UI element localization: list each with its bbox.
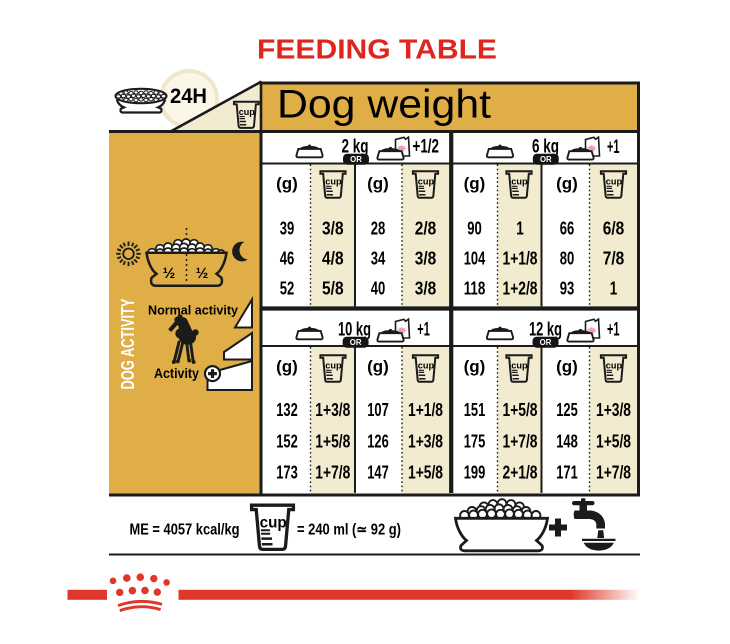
svg-text:52: 52 — [280, 278, 295, 299]
svg-text:½: ½ — [163, 265, 176, 282]
svg-text:24H: 24H — [170, 85, 207, 108]
svg-text:1+5/8: 1+5/8 — [408, 462, 443, 483]
svg-text:5/8: 5/8 — [322, 278, 344, 299]
svg-text:40: 40 — [371, 278, 386, 299]
svg-text:(g): (g) — [464, 357, 486, 376]
svg-text:FEEDING TABLE: FEEDING TABLE — [257, 34, 497, 65]
svg-text:1+5/8: 1+5/8 — [315, 431, 350, 452]
svg-text:93: 93 — [560, 278, 575, 299]
svg-text:1+5/8: 1+5/8 — [596, 431, 631, 452]
svg-text:126: 126 — [367, 431, 389, 452]
svg-text:151: 151 — [464, 399, 486, 420]
svg-text:+1: +1 — [607, 320, 620, 341]
svg-text:148: 148 — [556, 431, 578, 452]
svg-text:107: 107 — [367, 399, 389, 420]
svg-text:1+7/8: 1+7/8 — [503, 431, 538, 452]
svg-text:+1: +1 — [607, 137, 620, 158]
svg-text:Normal activity: Normal activity — [148, 304, 238, 318]
svg-text:1+3/8: 1+3/8 — [408, 431, 443, 452]
svg-text:(g): (g) — [276, 174, 298, 193]
svg-text:(g): (g) — [464, 174, 486, 193]
svg-text:34: 34 — [371, 248, 386, 269]
svg-text:(g): (g) — [556, 174, 578, 193]
svg-text:= 240 ml (≃ 92 g): = 240 ml (≃ 92 g) — [297, 522, 401, 539]
svg-text:66: 66 — [560, 218, 575, 239]
svg-text:104: 104 — [464, 248, 486, 269]
svg-text:1+1/8: 1+1/8 — [503, 248, 538, 269]
svg-text:ME = 4057 kcal/kg: ME = 4057 kcal/kg — [130, 522, 240, 539]
svg-text:1+2/8: 1+2/8 — [503, 278, 538, 299]
svg-text:(g): (g) — [276, 357, 298, 376]
svg-text:147: 147 — [367, 462, 389, 483]
svg-text:39: 39 — [280, 218, 295, 239]
svg-text:3/8: 3/8 — [322, 218, 344, 239]
svg-text:46: 46 — [280, 248, 295, 269]
svg-text:90: 90 — [467, 218, 482, 239]
svg-text:Dog weight: Dog weight — [277, 83, 491, 127]
svg-text:175: 175 — [464, 431, 486, 452]
svg-text:6/8: 6/8 — [603, 218, 625, 239]
svg-text:(g): (g) — [556, 357, 578, 376]
svg-text:Activity: Activity — [154, 366, 199, 381]
svg-text:1+7/8: 1+7/8 — [315, 462, 350, 483]
svg-text:28: 28 — [371, 218, 386, 239]
svg-text:7/8: 7/8 — [603, 248, 625, 269]
svg-text:(g): (g) — [367, 174, 389, 193]
svg-text:1+3/8: 1+3/8 — [315, 399, 350, 420]
svg-text:2/8: 2/8 — [415, 218, 437, 239]
svg-text:173: 173 — [276, 462, 298, 483]
svg-text:(g): (g) — [367, 357, 389, 376]
svg-text:DOG ACTIVITY: DOG ACTIVITY — [118, 299, 138, 390]
svg-text:4/8: 4/8 — [322, 248, 344, 269]
svg-text:1: 1 — [516, 218, 524, 239]
svg-text:+1: +1 — [417, 320, 430, 341]
svg-text:80: 80 — [560, 248, 575, 269]
svg-text:125: 125 — [556, 399, 578, 420]
svg-text:152: 152 — [276, 431, 298, 452]
svg-text:3/8: 3/8 — [415, 248, 437, 269]
svg-text:132: 132 — [276, 399, 298, 420]
svg-text:171: 171 — [556, 462, 578, 483]
svg-text:3/8: 3/8 — [415, 278, 437, 299]
svg-text:1+5/8: 1+5/8 — [503, 399, 538, 420]
svg-text:1+1/8: 1+1/8 — [408, 399, 443, 420]
svg-text:118: 118 — [464, 278, 486, 299]
svg-text:1+3/8: 1+3/8 — [596, 399, 631, 420]
svg-text:1: 1 — [610, 278, 618, 299]
svg-text:2+1/8: 2+1/8 — [503, 462, 538, 483]
svg-text:½: ½ — [196, 265, 209, 282]
svg-text:+1/2: +1/2 — [413, 137, 440, 158]
svg-text:1+7/8: 1+7/8 — [596, 462, 631, 483]
svg-text:199: 199 — [464, 462, 486, 483]
